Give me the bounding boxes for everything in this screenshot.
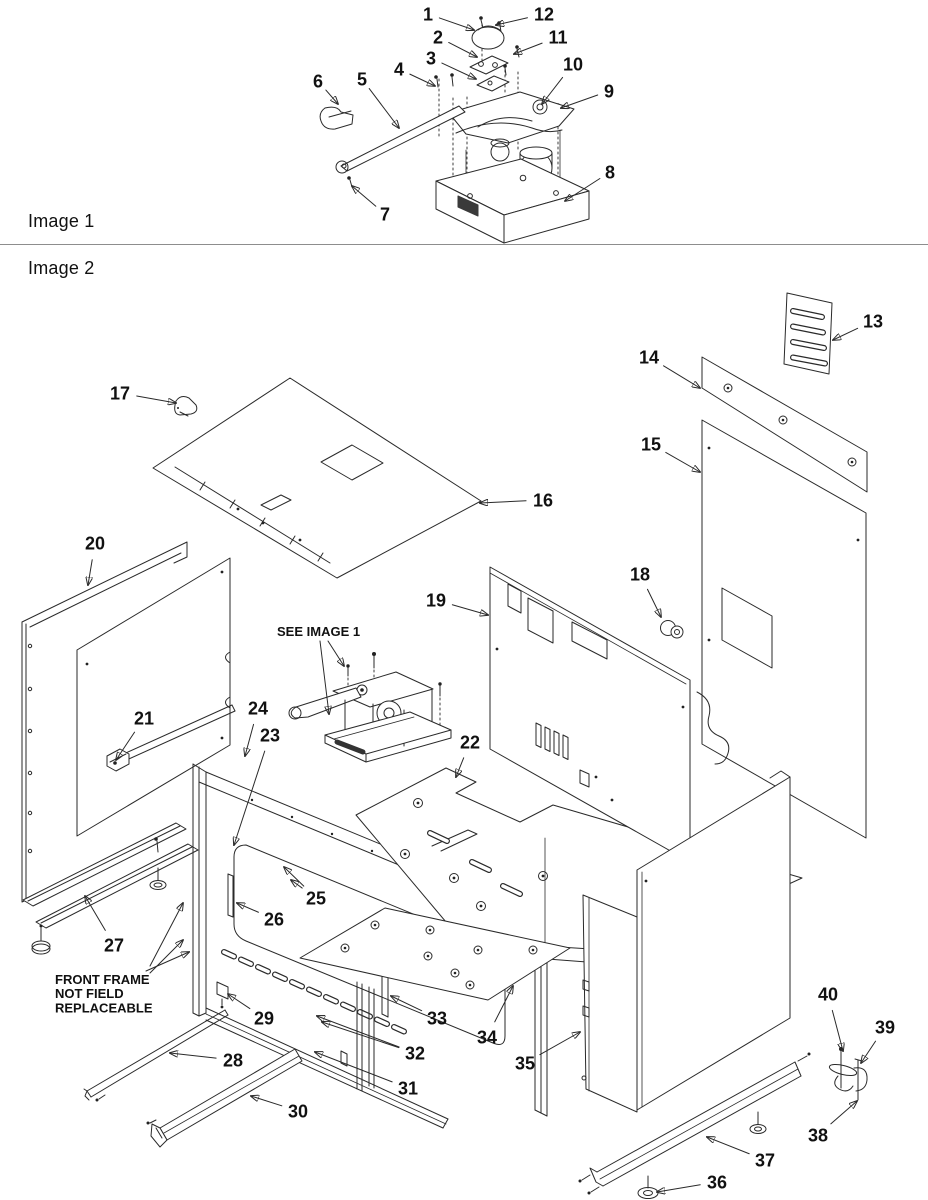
- callout-13: 13: [833, 312, 883, 341]
- leader-arrow-icon: [442, 63, 476, 79]
- callout-7: 7: [352, 186, 390, 225]
- callout-number-2: 2: [433, 28, 443, 48]
- callout-25: 25: [284, 867, 326, 909]
- part-28-strip: [84, 1010, 228, 1102]
- leader-arrow-icon: [452, 605, 488, 615]
- callout-number-37: 37: [755, 1151, 775, 1171]
- front-frame-note: FRONT FRAMENOT FIELDREPLACEABLE: [55, 903, 189, 1015]
- leader-arrow-icon: [228, 994, 250, 1009]
- leader-arrow-icon: [291, 880, 302, 888]
- leader-arrow-icon: [540, 1032, 580, 1055]
- leader-arrow-icon: [410, 74, 435, 86]
- part-38-39-40-bracket: [828, 1047, 867, 1100]
- callout-number-40: 40: [818, 985, 838, 1005]
- callout-number-35: 35: [515, 1054, 535, 1074]
- callout-number-38: 38: [808, 1126, 828, 1146]
- leader-arrow-icon: [833, 328, 858, 340]
- callout-27: 27: [85, 896, 124, 956]
- callout-number-19: 19: [426, 591, 446, 611]
- callout-28: 28: [170, 1051, 243, 1071]
- callout-36: 36: [657, 1173, 727, 1193]
- callout-2: 2: [433, 28, 477, 58]
- image1-latch-assembly-art: [320, 16, 589, 243]
- leader-arrow-icon: [664, 366, 700, 388]
- leader-arrow-icon: [861, 1041, 876, 1063]
- callout-12: 12: [496, 5, 554, 26]
- callout-number-5: 5: [357, 70, 367, 90]
- leader-arrow-icon: [315, 1052, 392, 1082]
- callout-number-27: 27: [104, 936, 124, 956]
- section-divider: [0, 244, 928, 245]
- leader-arrow-icon: [561, 95, 598, 108]
- callout-6: 6: [313, 72, 338, 105]
- part-31-32-strips: [341, 982, 374, 1091]
- front-frame-note-text: REPLACEABLE: [55, 1000, 153, 1015]
- callout-number-29: 29: [254, 1009, 274, 1029]
- callout-number-4: 4: [394, 60, 404, 80]
- callout-number-33: 33: [427, 1009, 447, 1029]
- callout-18: 18: [630, 565, 661, 618]
- callout-15: 15: [641, 435, 700, 473]
- part-15-rear-panel: [702, 420, 866, 838]
- callout-20: 20: [85, 534, 105, 586]
- callout-number-1: 1: [423, 5, 433, 25]
- callout-number-14: 14: [639, 348, 659, 368]
- leader-arrow-icon: [245, 724, 254, 756]
- part-13-vent-grille: [784, 293, 832, 374]
- callout-number-9: 9: [604, 82, 614, 102]
- callout-number-28: 28: [223, 1051, 243, 1071]
- callout-number-24: 24: [248, 699, 268, 719]
- leader-arrow-icon: [237, 903, 258, 912]
- section-label-image2: Image 2: [28, 258, 94, 279]
- leader-arrow-icon: [170, 1053, 216, 1058]
- section-label-image1: Image 1: [28, 211, 94, 232]
- leader-arrow-icon: [832, 1010, 843, 1051]
- leader-arrow-icon: [480, 501, 526, 503]
- callout-number-18: 18: [630, 565, 650, 585]
- see-image-1-text: SEE IMAGE 1: [277, 624, 360, 639]
- callout-number-30: 30: [288, 1102, 308, 1122]
- leader-arrow-icon: [439, 18, 474, 30]
- callout-number-23: 23: [260, 726, 280, 746]
- callout-22: 22: [456, 733, 480, 778]
- leader-arrow-icon: [514, 43, 542, 54]
- callout-number-15: 15: [641, 435, 661, 455]
- callout-number-12: 12: [534, 5, 554, 25]
- part-33-strip: [382, 972, 388, 1017]
- callout-number-6: 6: [313, 72, 323, 92]
- callout-number-34: 34: [477, 1028, 497, 1048]
- callout-number-10: 10: [563, 55, 583, 75]
- callout-1: 1: [423, 5, 474, 31]
- callout-number-22: 22: [460, 733, 480, 753]
- leader-arrow-icon: [137, 396, 176, 403]
- callout-number-31: 31: [398, 1079, 418, 1099]
- callout-number-32: 32: [405, 1044, 425, 1064]
- leader-arrow-icon: [542, 77, 563, 104]
- callout-14: 14: [639, 348, 700, 389]
- diagram-canvas: 1234567891011121314151617181920212223242…: [0, 0, 928, 1200]
- callout-number-11: 11: [548, 28, 567, 48]
- part-26-strip: [228, 874, 233, 917]
- callout-number-39: 39: [875, 1018, 895, 1038]
- part-27-left-rails: [23, 823, 198, 954]
- callout-17: 17: [110, 384, 176, 404]
- callout-29: 29: [228, 994, 274, 1029]
- callout-number-13: 13: [863, 312, 883, 332]
- leader-arrow-icon: [391, 996, 422, 1011]
- front-frame-note-text: NOT FIELD: [55, 986, 124, 1001]
- leader-arrow-icon: [326, 90, 338, 104]
- leader-arrow-icon: [657, 1185, 700, 1192]
- callout-40: 40: [818, 985, 843, 1052]
- callout-number-17: 17: [110, 384, 130, 404]
- callout-number-3: 3: [426, 49, 436, 69]
- callout-19: 19: [426, 591, 488, 616]
- callout-number-21: 21: [134, 709, 154, 729]
- part-29-clip: [217, 982, 228, 1008]
- leader-arrow-icon: [328, 641, 344, 666]
- callout-31: 31: [315, 1052, 418, 1099]
- part-35-inner-panel: [582, 895, 637, 1112]
- leader-arrow-icon: [647, 589, 661, 617]
- leader-arrow-icon: [707, 1137, 749, 1154]
- leader-arrow-icon: [284, 867, 304, 886]
- part-18-grommet: [661, 621, 684, 639]
- callout-37: 37: [707, 1137, 775, 1171]
- callout-32: 32: [317, 1016, 425, 1064]
- callout-number-7: 7: [380, 205, 390, 225]
- leader-arrow-icon: [666, 452, 700, 472]
- latch-assembly-mini: [289, 652, 451, 762]
- callout-26: 26: [237, 903, 284, 930]
- leader-arrow-icon: [496, 18, 527, 25]
- leader-arrow-icon: [88, 560, 92, 585]
- part-16-top-panel: [153, 378, 481, 578]
- callout-16: 16: [480, 491, 553, 511]
- callout-9: 9: [561, 82, 614, 109]
- leader-arrow-icon: [352, 186, 376, 206]
- part-17-clip: [175, 397, 197, 416]
- callout-number-36: 36: [707, 1173, 727, 1193]
- callout-number-25: 25: [306, 889, 326, 909]
- leader-arrow-icon: [251, 1096, 282, 1106]
- callout-38: 38: [808, 1101, 857, 1146]
- callout-23: 23: [234, 726, 280, 846]
- callout-5: 5: [357, 70, 399, 129]
- callout-10: 10: [542, 55, 583, 105]
- leader-arrow-icon: [831, 1101, 857, 1124]
- callout-number-8: 8: [605, 163, 615, 183]
- callout-30: 30: [251, 1096, 308, 1122]
- callout-number-20: 20: [85, 534, 105, 554]
- part-19-back-panel: [490, 567, 729, 862]
- front-frame-note-text: FRONT FRAME: [55, 972, 150, 987]
- callout-number-16: 16: [533, 491, 553, 511]
- leader-arrow-icon: [449, 42, 477, 57]
- callout-number-26: 26: [264, 910, 284, 930]
- leader-arrow-icon: [369, 89, 399, 128]
- parts-diagram-page: 1234567891011121314151617181920212223242…: [0, 0, 928, 1200]
- callout-11: 11: [514, 28, 568, 55]
- callout-39: 39: [861, 1018, 895, 1064]
